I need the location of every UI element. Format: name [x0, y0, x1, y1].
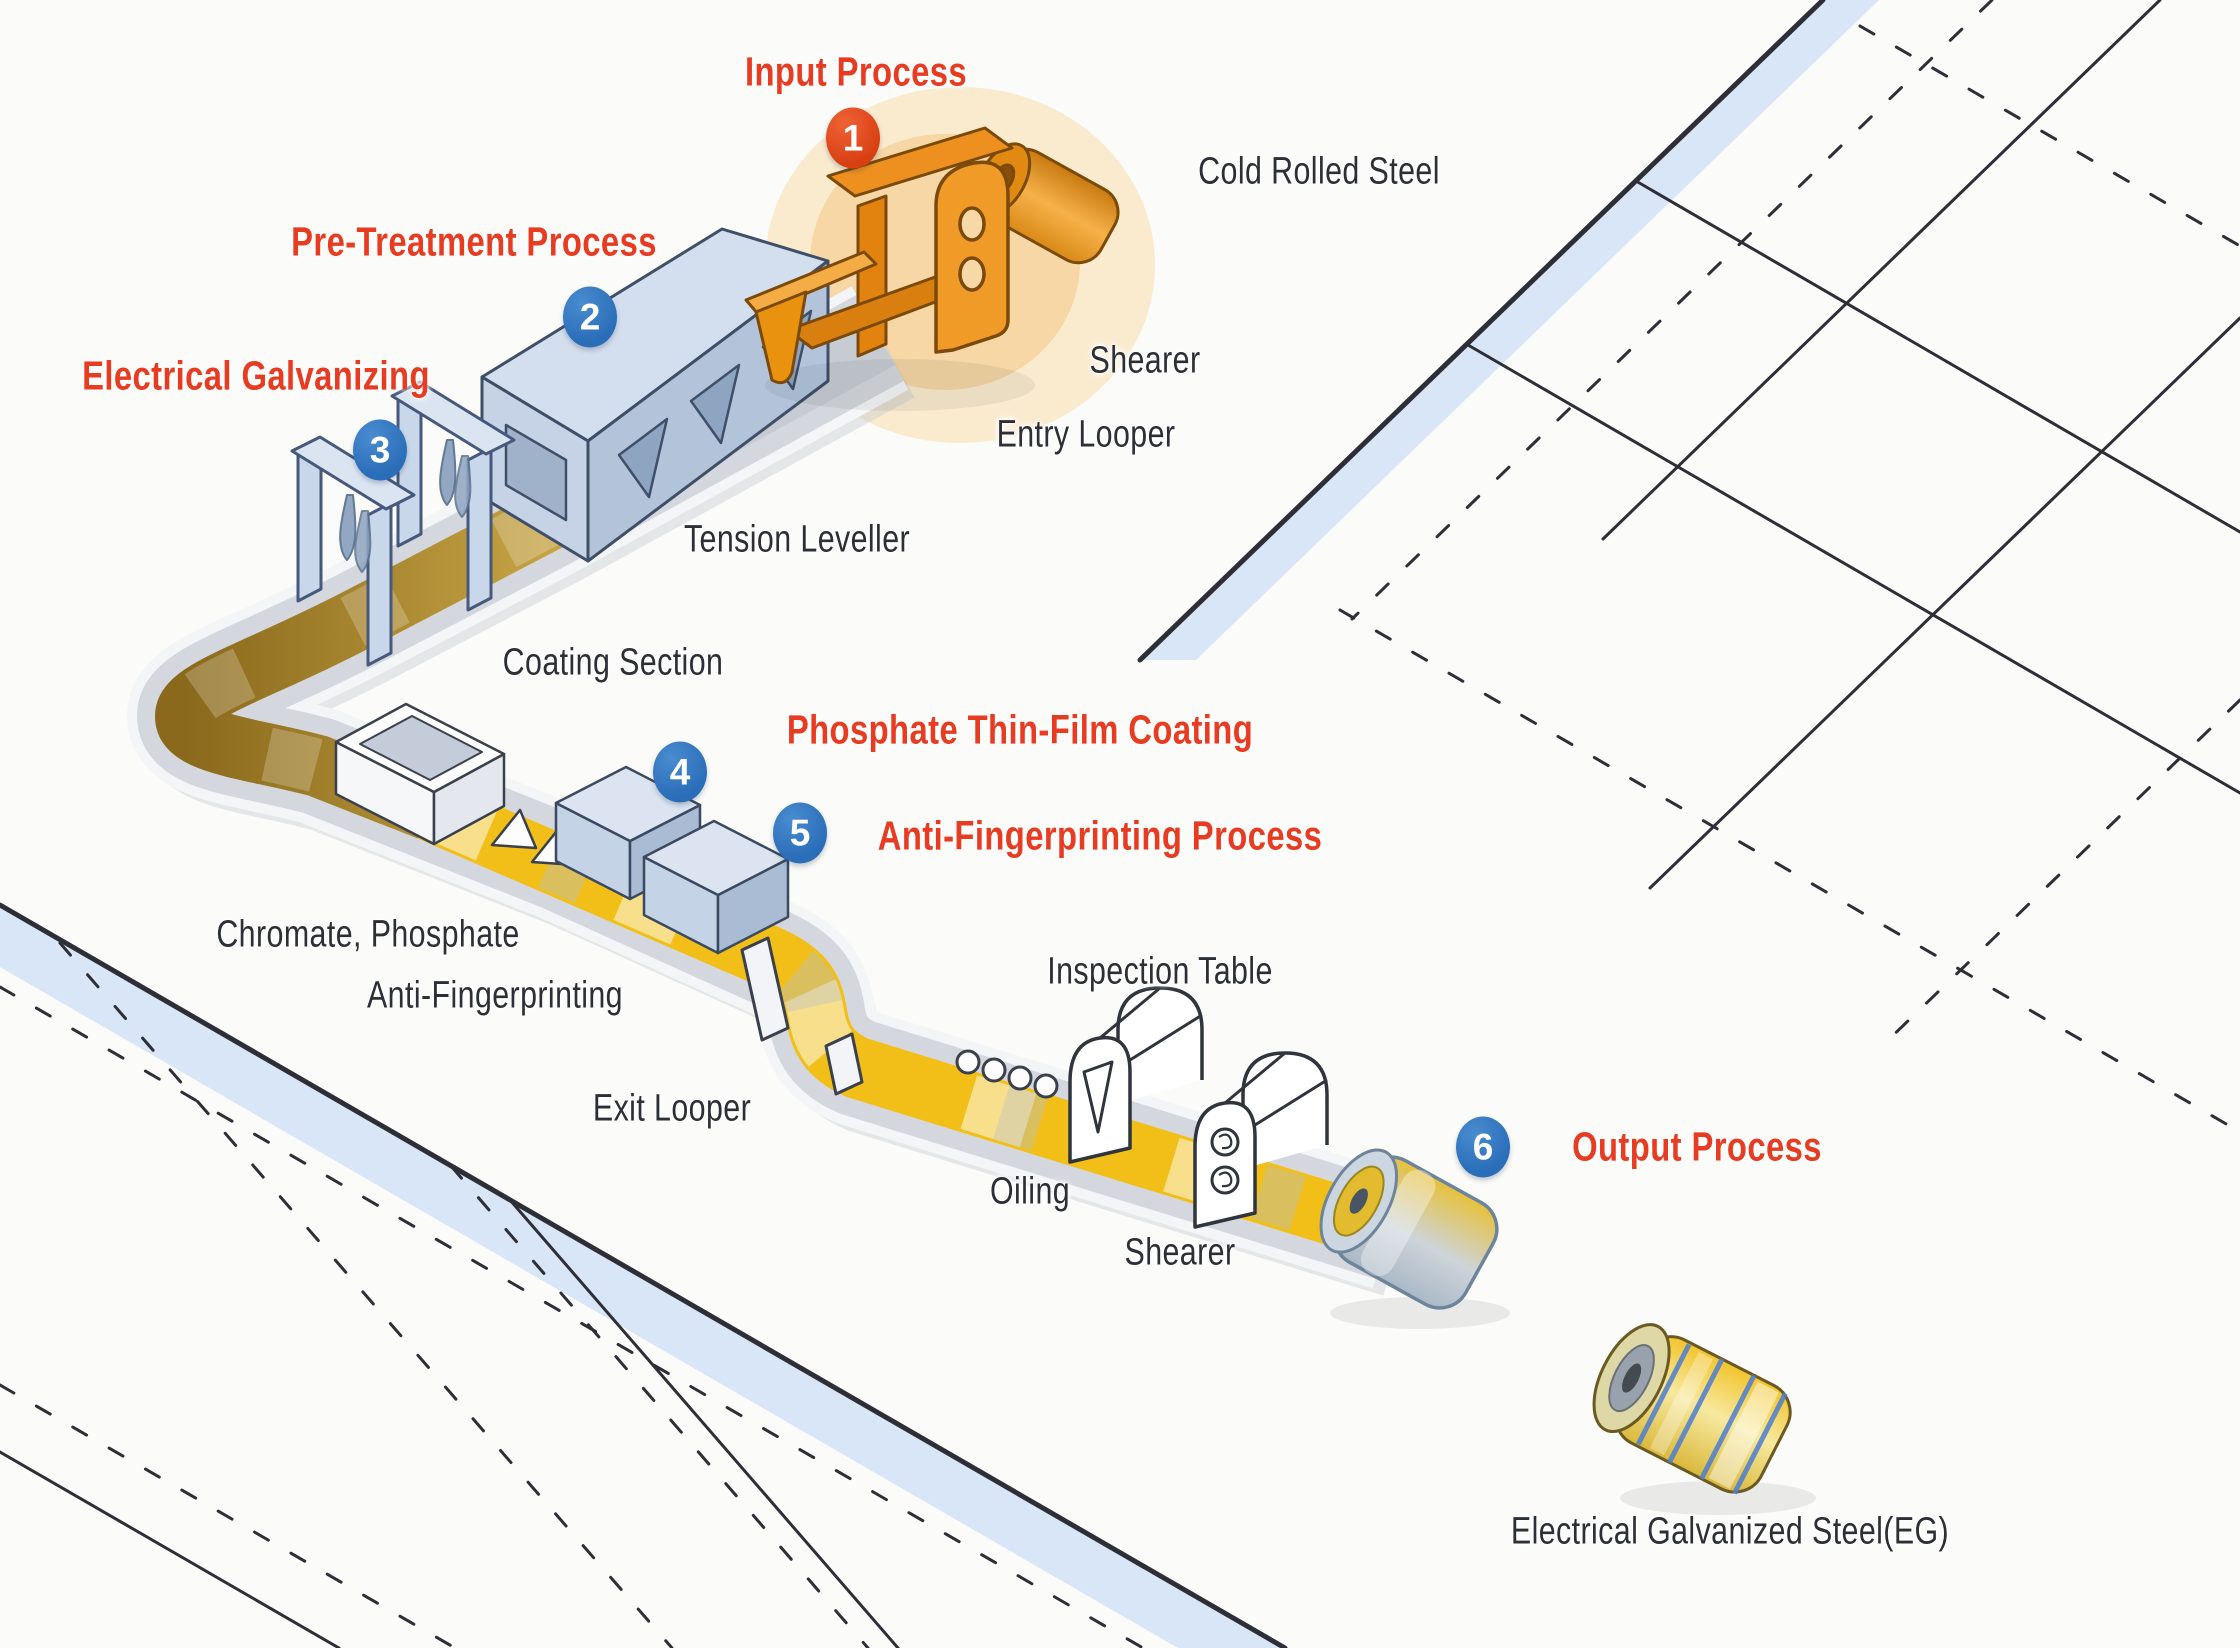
- label-coating-section: Coating Section: [503, 642, 724, 685]
- step-badge-5: 5: [773, 803, 827, 864]
- label-shearer-entry: Shearer: [1090, 340, 1201, 383]
- label-oiling: Oiling: [990, 1171, 1070, 1214]
- step-label-output-process: Output Process: [1572, 1124, 1822, 1171]
- label-entry-looper: Entry Looper: [997, 414, 1176, 457]
- label-anti-fingerprinting: Anti-Fingerprinting: [367, 975, 623, 1018]
- step-badge-1: 1: [826, 108, 880, 169]
- step-badge-6: 6: [1456, 1117, 1510, 1178]
- step-number-5: 5: [790, 812, 811, 854]
- label-exit-looper: Exit Looper: [593, 1088, 751, 1131]
- label-tension-leveller: Tension Leveller: [684, 519, 910, 562]
- floor-grid-bottomleft: [0, 905, 1285, 1648]
- step-number-1: 1: [843, 117, 864, 159]
- step-badge-4: 4: [653, 742, 707, 803]
- step-number-4: 4: [670, 751, 691, 793]
- step-label-input-process: Input Process: [745, 49, 967, 96]
- label-eg-steel: Electrical Galvanized Steel(EG): [1511, 1511, 1949, 1554]
- step-number-3: 3: [370, 429, 391, 471]
- road-band-topright: [1140, 0, 1879, 660]
- step-number-6: 6: [1473, 1126, 1494, 1168]
- label-chromate-phosphate: Chromate, Phosphate: [216, 914, 519, 957]
- step-label-pre-treatment: Pre-Treatment Process: [291, 219, 657, 266]
- eg-steel-coil: [1579, 1313, 1816, 1515]
- diagram-canvas: 1 2 3 4 5 6 Input Process Pre-Treatment …: [0, 0, 2240, 1648]
- step-badge-3: 3: [353, 420, 407, 481]
- step-label-electrical-galvanizing: Electrical Galvanizing: [82, 353, 430, 400]
- label-inspection-table: Inspection Table: [1047, 951, 1273, 994]
- step-label-phosphate-coating: Phosphate Thin-Film Coating: [787, 707, 1253, 754]
- step-badge-2: 2: [563, 287, 617, 348]
- label-shearer-exit: Shearer: [1125, 1232, 1236, 1275]
- label-cold-rolled-steel: Cold Rolled Steel: [1198, 151, 1440, 194]
- step-label-anti-fingerprinting-process: Anti-Fingerprinting Process: [878, 813, 1323, 860]
- step-number-2: 2: [580, 296, 601, 338]
